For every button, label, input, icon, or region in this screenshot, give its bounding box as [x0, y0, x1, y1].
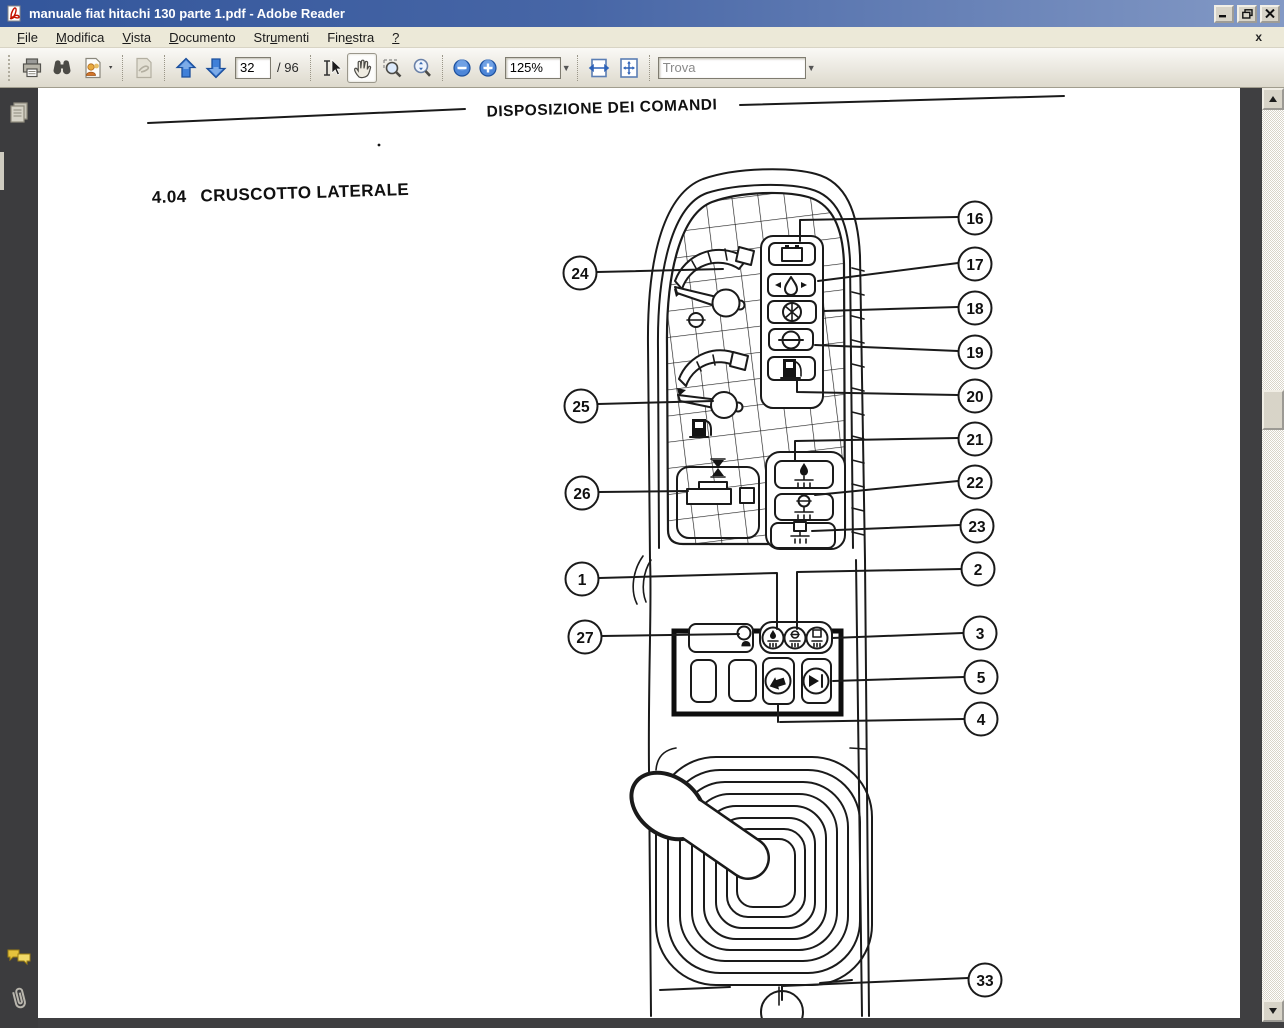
callout-5: 5 — [965, 661, 998, 694]
menu-bar: File Modifica Vista Documento Strumenti … — [0, 27, 1284, 48]
pdf-page: DISPOSIZIONE DEI COMANDI 4.04CRUSCOTTO L… — [38, 88, 1240, 1018]
callout-4: 4 — [965, 703, 998, 736]
callout-16: 16 — [959, 202, 992, 235]
menu-help[interactable]: ? — [383, 28, 408, 47]
search-button[interactable] — [47, 53, 77, 83]
section-title: 4.04CRUSCOTTO LATERALE — [152, 180, 410, 207]
panel-grab-tab[interactable] — [0, 152, 4, 190]
page-count-label: / 96 — [277, 60, 299, 75]
marquee-zoom-icon — [380, 56, 404, 80]
svg-text:27: 27 — [576, 630, 593, 647]
menu-documento[interactable]: Documento — [160, 28, 244, 47]
toolbar-separator — [164, 55, 166, 81]
callout-18: 18 — [959, 292, 992, 325]
select-tool-button[interactable] — [317, 53, 347, 83]
vertical-scrollbar — [1262, 88, 1284, 1028]
callout-26: 26 — [566, 477, 599, 510]
horn-button[interactable] — [763, 658, 794, 704]
svg-text:23: 23 — [968, 519, 986, 536]
previous-page-button[interactable] — [171, 53, 201, 83]
menu-strumenti[interactable]: Strumenti — [245, 28, 319, 47]
callout-25: 25 — [565, 390, 598, 423]
scroll-up-button[interactable] — [1262, 88, 1284, 110]
pdf-app-icon — [6, 5, 23, 22]
zoom-in-icon — [478, 58, 498, 78]
scroll-up-icon — [1269, 96, 1277, 102]
wiper-button[interactable] — [802, 659, 831, 703]
marquee-zoom-button[interactable] — [377, 53, 407, 83]
next-page-button[interactable] — [201, 53, 231, 83]
svg-text:3: 3 — [976, 626, 985, 643]
switch-panel — [674, 622, 841, 714]
svg-text:22: 22 — [966, 475, 983, 492]
pages-panel-button[interactable] — [6, 100, 32, 126]
page-up-icon — [174, 56, 198, 80]
svg-text:26: 26 — [573, 486, 591, 503]
adobe-reader-window: manuale fiat hitachi 130 parte 1.pdf - A… — [0, 0, 1284, 1028]
toolbar: / 96 — [0, 48, 1284, 88]
sign-button[interactable] — [129, 53, 159, 83]
pages-icon — [7, 100, 31, 126]
blank-switch[interactable] — [691, 660, 716, 702]
menu-vista[interactable]: Vista — [113, 28, 160, 47]
svg-text:18: 18 — [966, 301, 984, 318]
sign-icon — [132, 56, 156, 80]
fit-page-button[interactable] — [614, 53, 644, 83]
print-button[interactable] — [17, 53, 47, 83]
title-bar: manuale fiat hitachi 130 parte 1.pdf - A… — [0, 0, 1284, 27]
collaborate-icon — [80, 56, 114, 80]
paperclip-icon — [8, 986, 30, 1012]
menu-file[interactable]: File — [8, 28, 47, 47]
navigation-pane — [0, 88, 38, 1028]
zoom-level-input[interactable] — [505, 57, 561, 79]
callout-2: 2 — [962, 553, 995, 586]
callout-19: 19 — [959, 336, 992, 369]
restore-button[interactable] — [1237, 5, 1257, 23]
find-dropdown-icon[interactable]: ▼ — [806, 53, 817, 83]
scrollbar-track[interactable] — [1262, 110, 1284, 1000]
callout-27: 27 — [569, 621, 602, 654]
dynamic-zoom-icon — [410, 56, 434, 80]
comments-icon — [6, 947, 32, 967]
blank-switch[interactable] — [729, 660, 756, 701]
zoom-dropdown-icon[interactable]: ▼ — [561, 53, 572, 83]
joystick-boot — [616, 756, 872, 985]
alarm-display — [689, 624, 753, 652]
page-header: DISPOSIZIONE DEI COMANDI — [148, 96, 1064, 146]
zoom-in-button[interactable] — [475, 53, 501, 83]
callout-3: 3 — [964, 617, 997, 650]
page-number-input[interactable] — [235, 57, 271, 79]
scrollbar-footer — [1262, 1022, 1284, 1028]
svg-text:17: 17 — [966, 257, 983, 274]
scroll-down-button[interactable] — [1262, 1000, 1284, 1022]
callout-24: 24 — [564, 257, 597, 290]
svg-text:25: 25 — [572, 399, 590, 416]
zoom-out-button[interactable] — [449, 53, 475, 83]
hand-tool-button[interactable] — [347, 53, 377, 83]
svg-text:16: 16 — [966, 211, 984, 228]
callout-23: 23 — [961, 510, 994, 543]
callout-17: 17 — [959, 248, 992, 281]
scroll-down-icon — [1269, 1008, 1277, 1014]
fit-width-icon — [587, 56, 611, 80]
binoculars-icon — [50, 56, 74, 80]
level-lamp-group — [766, 452, 845, 549]
svg-text:24: 24 — [571, 266, 589, 283]
window-title: manuale fiat hitachi 130 parte 1.pdf - A… — [29, 6, 1214, 21]
scrollbar-thumb[interactable] — [1262, 390, 1284, 430]
toolbar-separator — [577, 55, 579, 81]
callout-1: 1 — [566, 563, 599, 596]
dynamic-zoom-button[interactable] — [407, 53, 437, 83]
page-down-icon — [204, 56, 228, 80]
toolbar-separator — [442, 55, 444, 81]
document-area: DISPOSIZIONE DEI COMANDI 4.04CRUSCOTTO L… — [38, 88, 1262, 1028]
menu-finestra[interactable]: Finestra — [318, 28, 383, 47]
close-button[interactable] — [1260, 5, 1280, 23]
attachments-panel-button[interactable] — [6, 986, 32, 1012]
svg-text:21: 21 — [966, 432, 984, 449]
svg-text:5: 5 — [977, 670, 986, 687]
toolbar-separator — [310, 55, 312, 81]
toolbar-separator — [122, 55, 124, 81]
minimize-button[interactable] — [1214, 5, 1234, 23]
svg-text:33: 33 — [976, 973, 994, 990]
svg-text:4: 4 — [977, 712, 986, 729]
scan-artifact — [378, 144, 381, 147]
callout-33: 33 — [969, 964, 1002, 997]
svg-text:2: 2 — [974, 562, 983, 579]
indicator-lamp-column — [761, 236, 823, 408]
header-title: DISPOSIZIONE DEI COMANDI — [486, 96, 717, 120]
battery-icon — [782, 245, 802, 261]
toolbar-grip — [8, 55, 13, 81]
select-tool-icon — [320, 56, 344, 80]
callout-21: 21 — [959, 423, 992, 456]
print-icon — [20, 56, 44, 80]
manual-page-figure: DISPOSIZIONE DEI COMANDI 4.04CRUSCOTTO L… — [38, 88, 1240, 1018]
side-console-diagram: 16 17 18 19 20 21 22 23 2 3 5 4 — [564, 169, 1002, 1018]
menu-modifica[interactable]: Modifica — [47, 28, 113, 47]
callout-22: 22 — [959, 466, 992, 499]
find-input[interactable] — [658, 57, 806, 79]
toolbar-separator — [649, 55, 651, 81]
svg-text:1: 1 — [578, 572, 587, 589]
fit-page-icon — [617, 56, 641, 80]
callout-20: 20 — [959, 380, 992, 413]
svg-text:19: 19 — [966, 345, 984, 362]
zoom-out-icon — [452, 58, 472, 78]
collaborate-button[interactable] — [77, 53, 117, 83]
fit-width-button[interactable] — [584, 53, 614, 83]
svg-text:20: 20 — [966, 389, 983, 406]
hand-tool-icon — [350, 56, 374, 80]
toolbar-close-icon[interactable]: x — [1241, 30, 1276, 44]
coolant-temperature-icon — [783, 303, 801, 321]
comments-panel-button[interactable] — [6, 944, 32, 970]
